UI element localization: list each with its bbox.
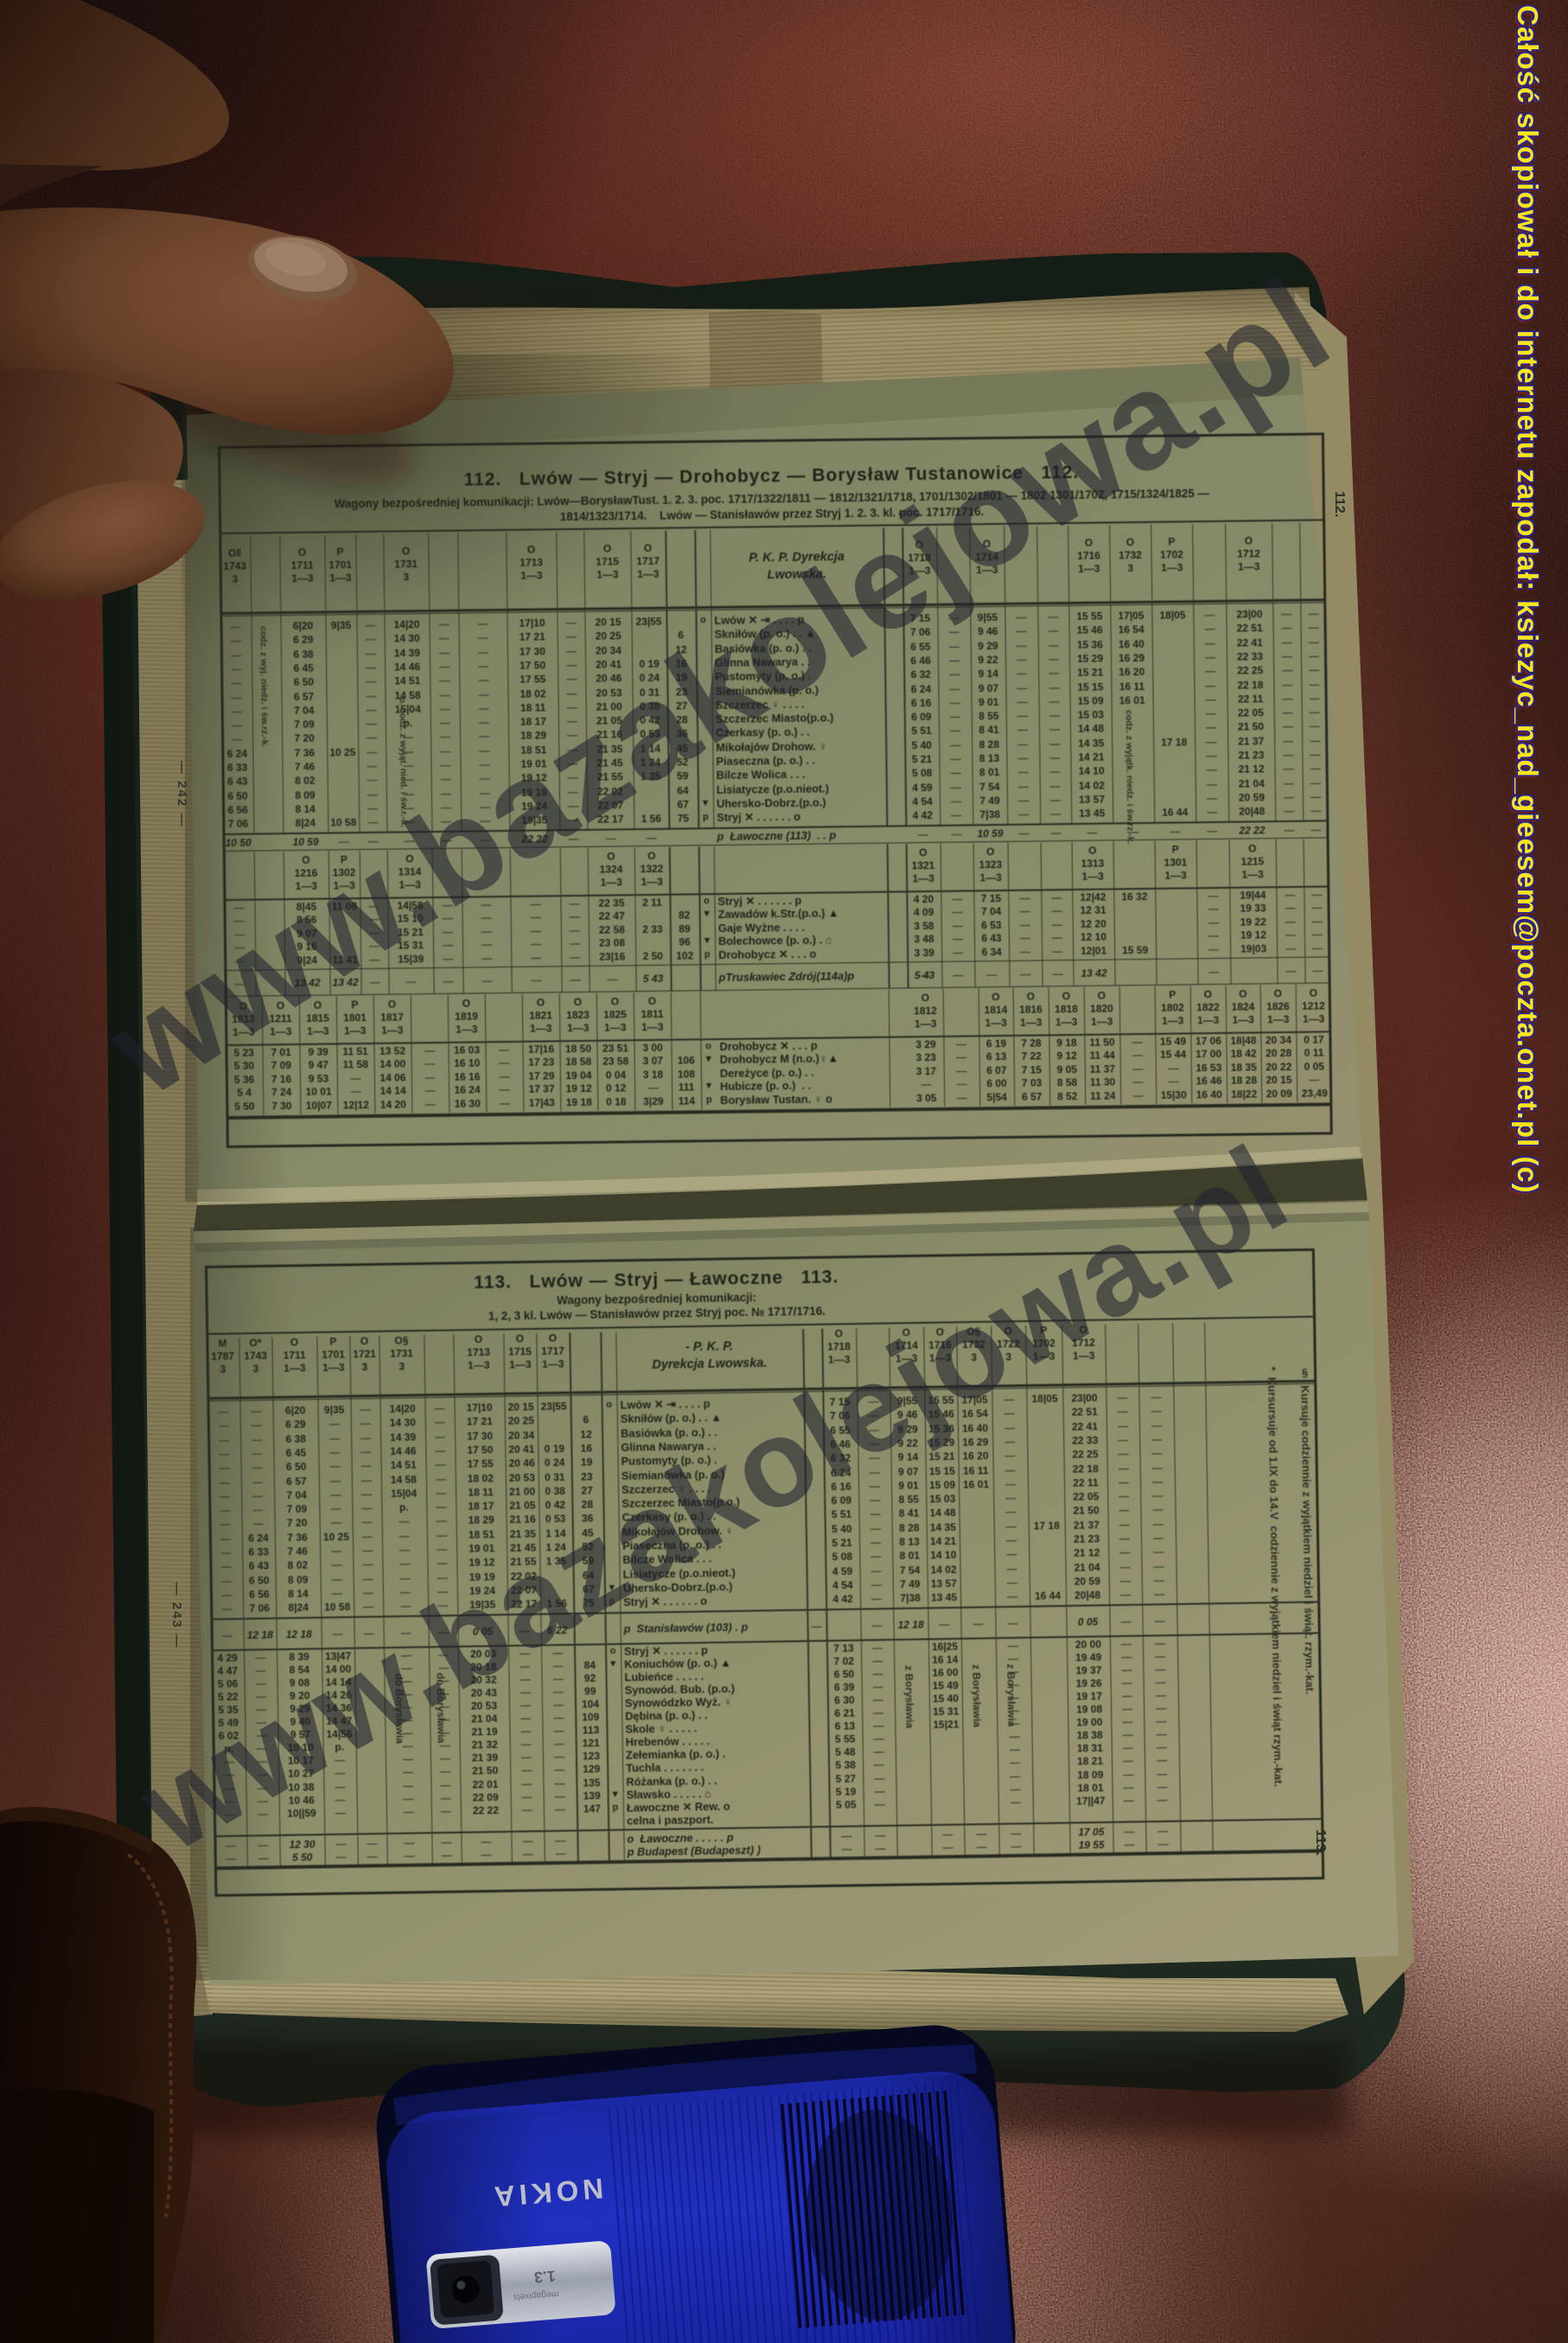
svg-text:1.3: 1.3 <box>533 2267 557 2286</box>
